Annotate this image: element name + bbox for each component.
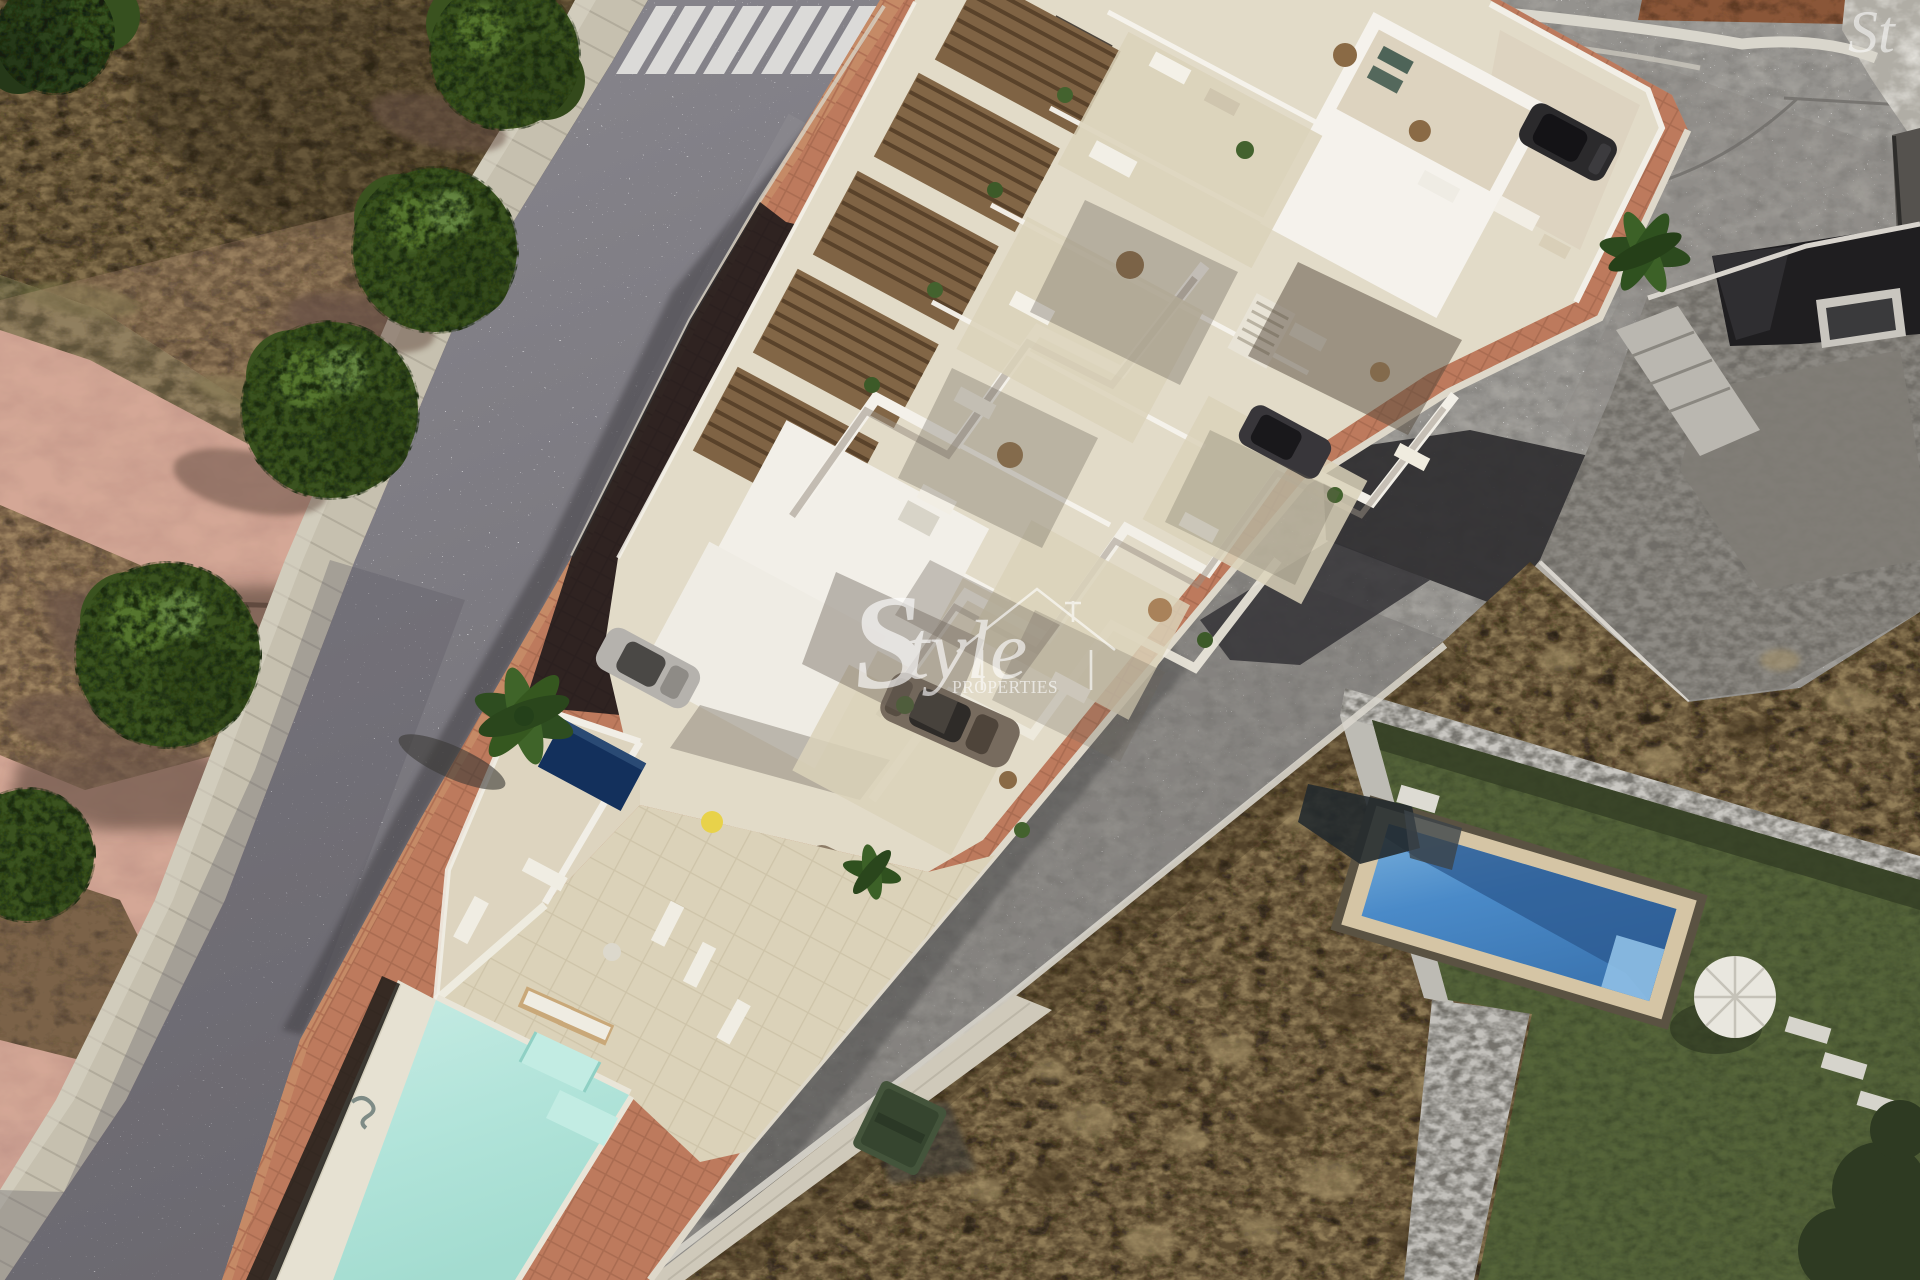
svg-text:St: St [1848, 0, 1896, 65]
svg-text:PROPERTIES: PROPERTIES [952, 677, 1058, 697]
